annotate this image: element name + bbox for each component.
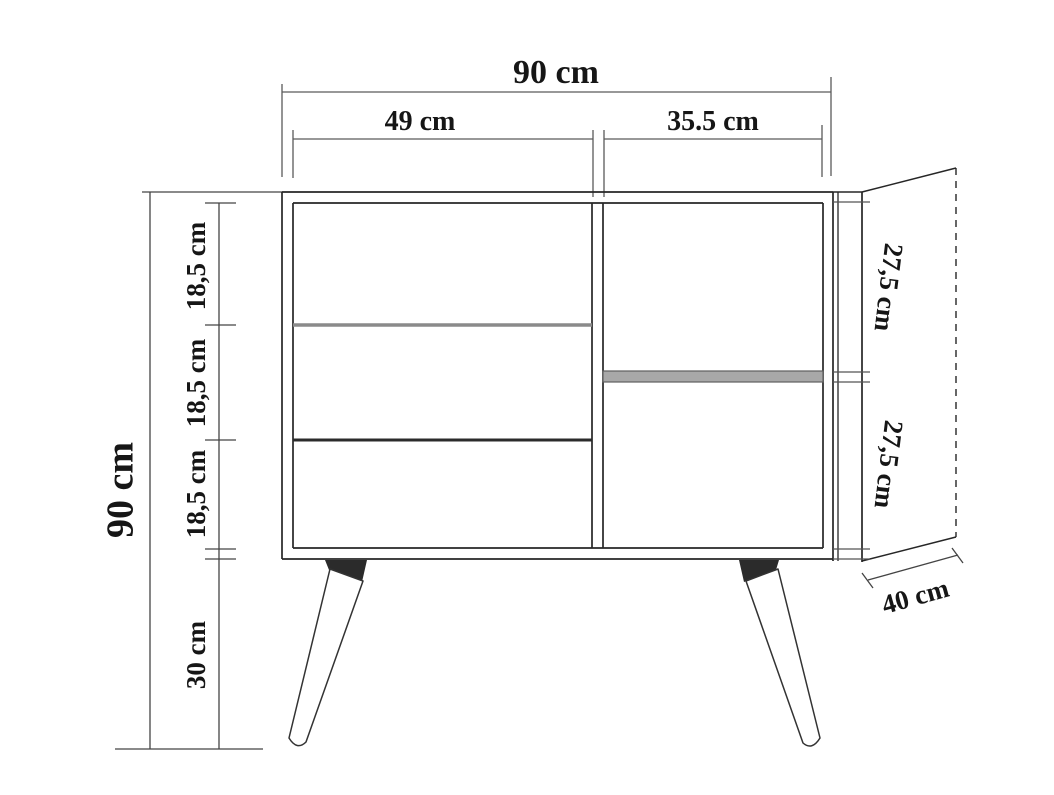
drawer-height-label-3: 18,5 cm [181,449,211,538]
drawer-height-label-1: 18,5 cm [181,221,211,310]
left-section-width-label: 49 cm [385,106,456,137]
legs [289,560,820,746]
right-leg [746,569,820,746]
panel-bottom-slant [862,537,956,561]
shelf-height-label-2: 27,5 cm [868,419,909,511]
shelf-board [603,371,823,382]
diagram-canvas: 90 cm 49 cm 35.5 cm 90 cm 18,5 cm 18,5 c… [0,0,1054,795]
right-section-width-label: 35.5 cm [667,106,759,137]
panel-top-slant [862,168,956,192]
shelf-height-label-1: 27,5 cm [868,242,909,334]
drawer-height-label-2: 18,5 cm [181,338,211,427]
leg-height-label: 30 cm [181,620,211,689]
overall-width-label: 90 cm [513,54,599,91]
dim-tick [952,548,963,563]
left-leg [289,569,363,746]
overall-height-label: 90 cm [100,442,142,538]
furniture-dimension-drawing: 90 cm 49 cm 35.5 cm 90 cm 18,5 cm 18,5 c… [0,0,1054,795]
dim-tick [862,573,873,588]
depth-label: 40 cm [878,573,952,620]
